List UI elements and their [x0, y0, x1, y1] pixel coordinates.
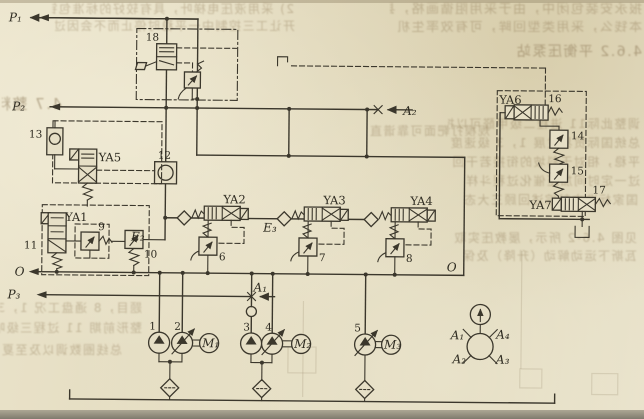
- valve-group-ya4: [364, 207, 436, 275]
- label-ya2: YA2: [222, 192, 245, 206]
- pressure-line-p2: [50, 103, 412, 157]
- label-c5: 5: [354, 322, 361, 334]
- label-p2: P₂: [11, 99, 25, 113]
- solenoid-valve-ya6: [505, 105, 562, 120]
- scanned-page: 报永安装包闭中，由于采用阻循画格，县设成 本钱么，采用类型回眸，可有效率生机硬 …: [0, 0, 644, 419]
- label-p3: P₃: [6, 287, 20, 301]
- counterbalance-cluster: [496, 91, 611, 238]
- label-m2: M₂: [293, 337, 311, 351]
- label-ya3: YA3: [322, 193, 345, 207]
- label-port-a3: A₃: [495, 353, 510, 367]
- label-c11: 11: [24, 240, 37, 252]
- manual-lever-icon: [135, 61, 156, 69]
- tank-symbol: [575, 219, 589, 237]
- label-c2: 2: [174, 321, 181, 333]
- solenoid-valve-ya5: [69, 149, 96, 206]
- tank-line: [70, 390, 555, 403]
- label-e2: E₂: [130, 229, 145, 243]
- check-valve-12: [154, 162, 176, 184]
- label-c10: 10: [144, 249, 157, 261]
- label-a1: A₁: [253, 281, 268, 295]
- label-c12: 12: [158, 150, 171, 162]
- relief-14: [550, 130, 568, 148]
- label-port-a2: A₂: [451, 352, 466, 366]
- label-o-right: O: [447, 260, 457, 274]
- gauge-icon: [470, 304, 490, 324]
- label-c6: 6: [219, 251, 226, 263]
- label-o-left: O: [15, 264, 25, 278]
- solenoid-valve-ya7: [552, 196, 610, 212]
- filter-icon: [161, 379, 179, 397]
- label-c3: 3: [243, 321, 250, 333]
- label-m3: M₃: [383, 338, 401, 352]
- label-c8: 8: [406, 253, 413, 265]
- label-c4: 4: [265, 322, 272, 334]
- pressure-line-p3: [36, 291, 274, 301]
- label-ya4: YA4: [409, 194, 432, 208]
- a-port-cluster: [463, 304, 498, 363]
- label-p1: P₁: [8, 10, 22, 24]
- label-m1: M₁: [201, 336, 219, 350]
- label-c1: 1: [149, 321, 156, 333]
- label-c14: 14: [571, 130, 585, 142]
- label-c16: 16: [548, 93, 562, 105]
- valve-group-ya2: [177, 206, 249, 274]
- label-c18: 18: [146, 32, 159, 44]
- unloading-valve-cluster: [41, 205, 166, 276]
- hydraulic-schematic: P₁ P₂ P₃ O O A₂ A₁ E₂ E₃ YA2 YA3 YA4 YA1…: [0, 0, 644, 419]
- label-a2: A₂: [402, 104, 417, 118]
- label-ya1: YA1: [64, 210, 87, 224]
- label-ya5: YA5: [98, 150, 121, 164]
- label-c7: 7: [319, 252, 326, 264]
- label-port-a1: A₁: [450, 328, 465, 342]
- label-c9: 9: [98, 221, 105, 233]
- label-e3: E₃: [262, 221, 277, 235]
- proportional-valve-11-ya1: [41, 213, 67, 272]
- label-ya7: YA7: [528, 198, 551, 212]
- label-c15: 15: [571, 165, 584, 177]
- scan-edge-bottom: [0, 410, 644, 419]
- relief-15: [539, 163, 568, 182]
- pilot-relief-9: [81, 232, 112, 250]
- label-port-a4: A₄: [495, 328, 510, 342]
- label-c17: 17: [592, 184, 605, 196]
- filter-icon: [253, 380, 271, 398]
- label-ya6: YA6: [498, 93, 521, 107]
- label-c13: 13: [29, 129, 42, 141]
- filter-icon: [356, 380, 374, 398]
- valve-group-ya3: [277, 207, 349, 275]
